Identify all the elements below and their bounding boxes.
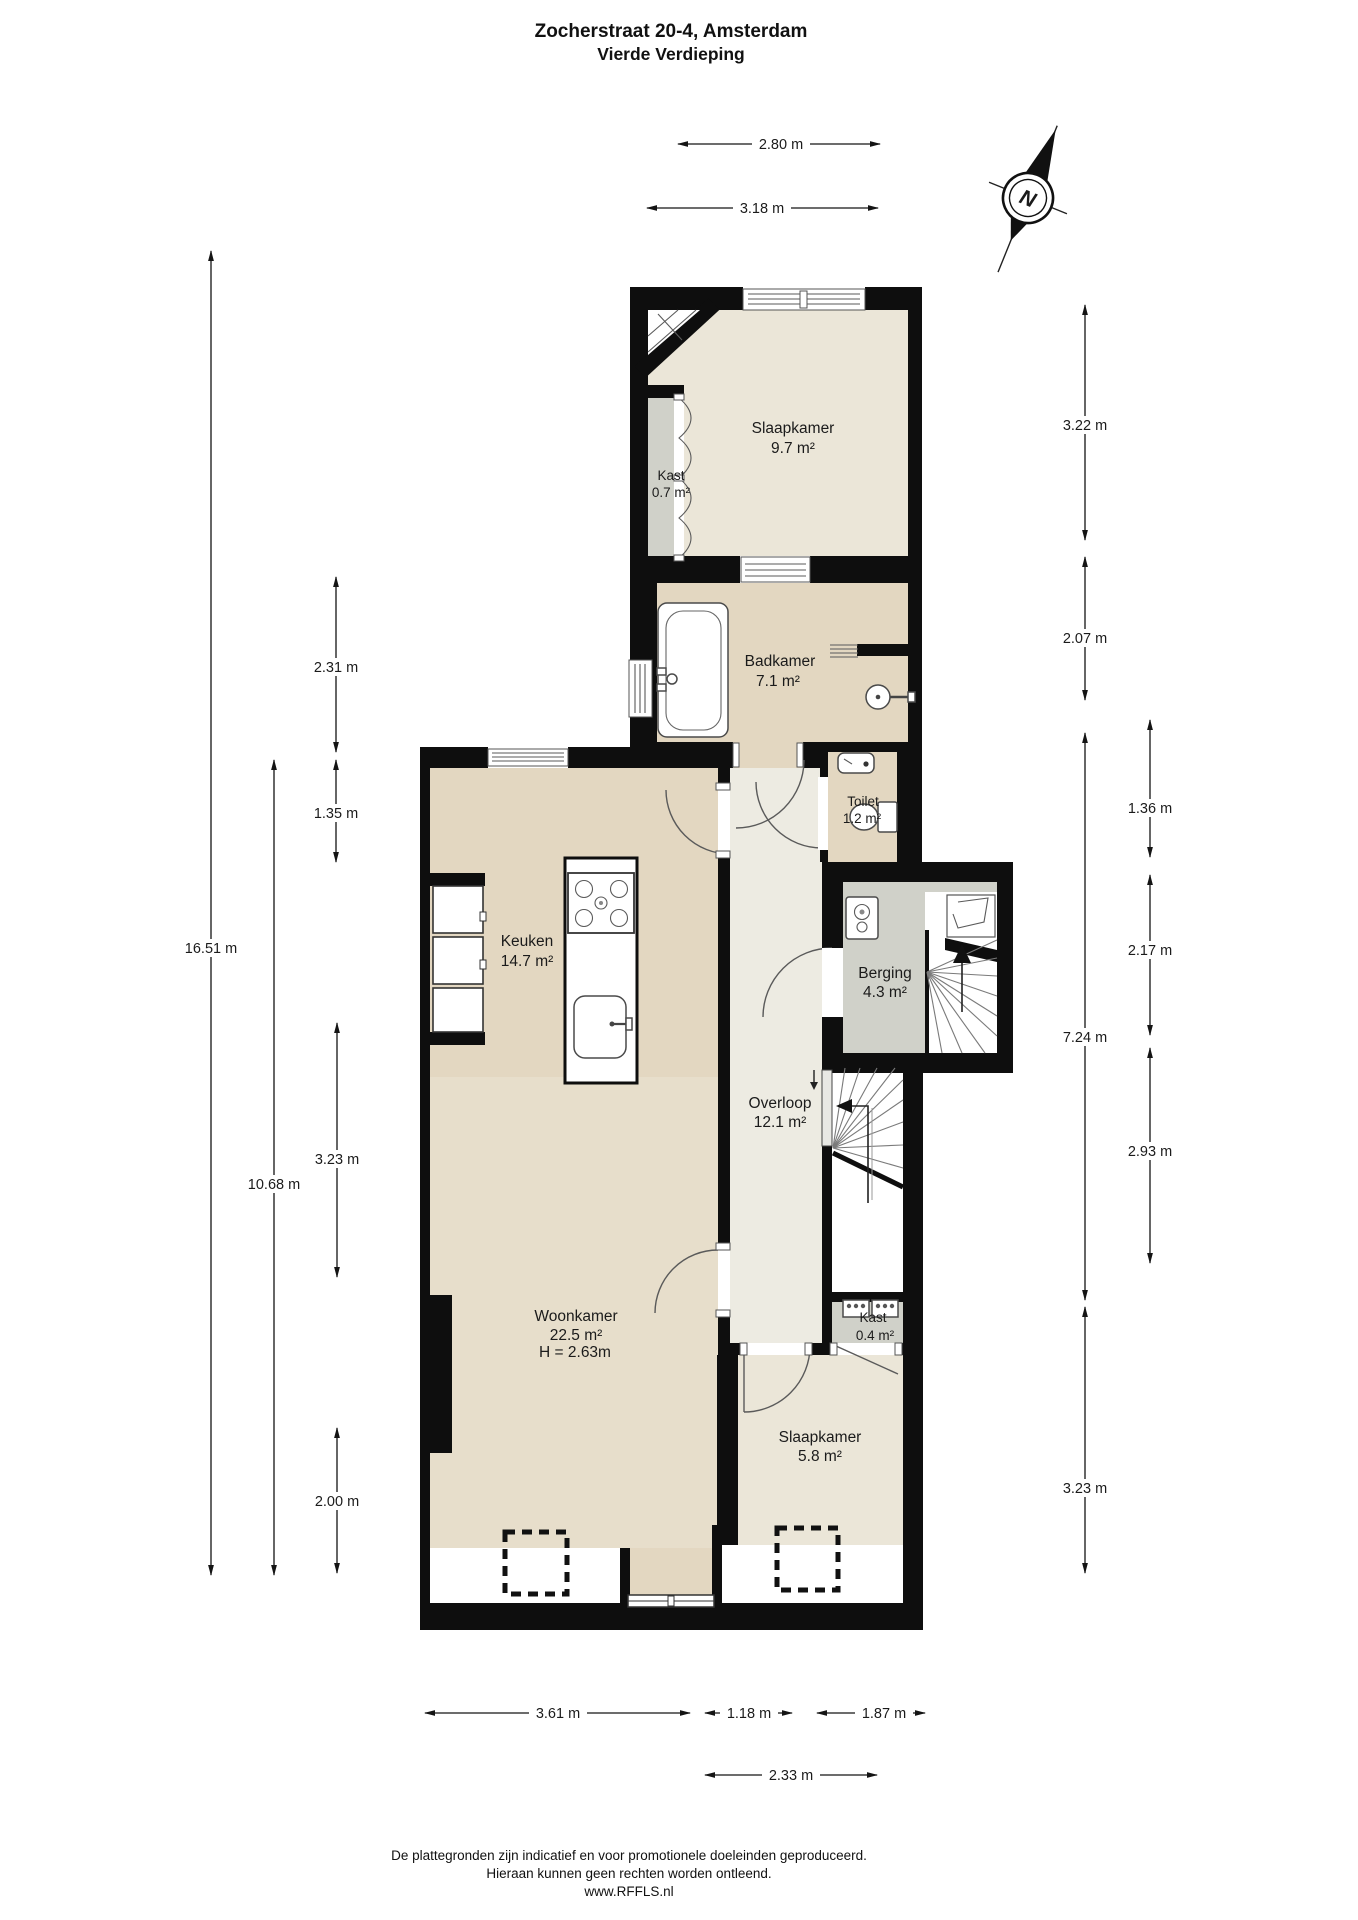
dim-left-1068: 10.68 m [241, 760, 307, 1575]
footer-website: www.RFFLS.nl [0, 1883, 1258, 1901]
window-badkamer-left [629, 660, 652, 717]
svg-text:2.31 m: 2.31 m [314, 660, 358, 676]
label-kast2-area: 0.4 m² [856, 1328, 895, 1343]
roof-strip-right [722, 1545, 903, 1603]
label-toilet-area: 1.2 m² [843, 811, 882, 826]
wall-segment [820, 850, 828, 862]
label-berging-area: 4.3 m² [863, 984, 907, 1001]
footer-line-1: De plattegronden zijn indicatief en voor… [0, 1847, 1258, 1865]
bathtub-icon [657, 603, 728, 737]
boiler-icon [846, 897, 878, 939]
svg-text:3.23 m: 3.23 m [315, 1152, 359, 1168]
dim-top-280: 2.80 m [678, 135, 880, 153]
door-jamb [797, 743, 803, 767]
svg-text:2.07 m: 2.07 m [1063, 631, 1107, 647]
wall-segment [822, 862, 843, 948]
label-slaapkamer1-name: Slaapkamer [752, 420, 835, 437]
dim-left-200: 2.00 m [310, 1428, 365, 1573]
label-badkamer-area: 7.1 m² [756, 673, 800, 690]
svg-text:3.18 m: 3.18 m [740, 201, 784, 217]
room-overloop [730, 742, 822, 1343]
door-jamb [895, 1343, 902, 1355]
bay-column [630, 1548, 712, 1598]
label-woonkamer-name: Woonkamer [534, 1308, 617, 1325]
dim-left-323: 3.23 m [310, 1023, 365, 1277]
label-slaapkamer1-area: 9.7 m² [771, 440, 815, 457]
svg-text:1.35 m: 1.35 m [314, 806, 358, 822]
svg-text:7.24 m: 7.24 m [1063, 1030, 1107, 1046]
label-badkamer-name: Badkamer [745, 653, 816, 670]
dim-left-1651: 16.51 m [178, 251, 244, 1575]
footer-line-2: Hieraan kunnen geen rechten worden ontle… [0, 1865, 1258, 1883]
doorway-hal [730, 742, 803, 768]
svg-text:1.18 m: 1.18 m [727, 1706, 771, 1722]
dim-right-322: 3.22 m [1058, 305, 1113, 540]
door-jamb [830, 1343, 837, 1355]
label-woonkamer-height: H = 2.63m [539, 1344, 611, 1361]
window-top [743, 289, 865, 310]
dim-right-217: 2.17 m [1123, 875, 1178, 1035]
wall-segment [430, 1032, 485, 1045]
door-jamb [805, 1343, 812, 1355]
label-toilet-name: Toilet [847, 794, 879, 809]
door-berging-gap [822, 948, 843, 1017]
wall-segment [820, 752, 828, 777]
label-berging-name: Berging [858, 965, 911, 982]
window-interior-slaapkamer [741, 557, 810, 582]
wall-segment [430, 873, 485, 886]
door-jamb [716, 1243, 730, 1250]
dim-bottom-233: 2.33 m [705, 1766, 877, 1784]
wall-segment [908, 287, 922, 742]
chimney-pier [428, 1295, 452, 1453]
label-woonkamer-area: 22.5 m² [550, 1327, 603, 1344]
dim-right-207: 2.07 m [1058, 557, 1113, 700]
floorplan-drawing: Slaapkamer 9.7 m² Kast 0.7 m² Badkamer 7… [0, 0, 1358, 1920]
wall-segment [828, 742, 897, 752]
label-keuken-area: 14.7 m² [501, 953, 554, 970]
svg-text:2.17 m: 2.17 m [1128, 943, 1172, 959]
wall-segment [630, 742, 733, 768]
door-toilet-gap [818, 777, 828, 850]
svg-text:3.61 m: 3.61 m [536, 1706, 580, 1722]
window-keuken-top [488, 749, 568, 766]
wall-segment [712, 1525, 722, 1605]
label-overloop-name: Overloop [749, 1095, 812, 1112]
wall-segment [822, 1053, 1013, 1073]
dim-right-136: 1.36 m [1123, 720, 1178, 857]
wall-segment [997, 870, 1013, 1073]
wall-segment [648, 556, 740, 583]
svg-text:3.22 m: 3.22 m [1063, 418, 1107, 434]
label-slaapkamer2-name: Slaapkamer [779, 1429, 862, 1446]
wall-segment [630, 287, 648, 568]
roof-strip-left [430, 1548, 620, 1603]
dim-right-293: 2.93 m [1123, 1048, 1178, 1263]
wall-segment [718, 853, 730, 1248]
svg-text:2.93 m: 2.93 m [1128, 1144, 1172, 1160]
wall-segment [420, 747, 488, 768]
svg-text:2.00 m: 2.00 m [315, 1494, 359, 1510]
dim-left-135: 1.35 m [309, 760, 364, 862]
label-overloop-area: 12.1 m² [754, 1114, 807, 1131]
kitchen-island [565, 858, 637, 1083]
svg-text:1.87 m: 1.87 m [862, 1706, 906, 1722]
wall-segment [857, 644, 910, 656]
wall-segment [822, 1017, 843, 1053]
svg-text:16.51 m: 16.51 m [185, 941, 237, 957]
door-jamb [716, 783, 730, 790]
svg-text:2.80 m: 2.80 m [759, 137, 803, 153]
wall-segment [717, 1355, 738, 1545]
door-jamb [733, 743, 739, 767]
door-jamb [716, 851, 730, 858]
compass-icon: N [959, 110, 1096, 288]
wall-segment [810, 556, 908, 583]
dim-top-318: 3.18 m [647, 199, 878, 217]
label-slaapkamer2-area: 5.8 m² [798, 1448, 842, 1465]
svg-text:1.36 m: 1.36 m [1128, 801, 1172, 817]
wall-segment [900, 1343, 923, 1355]
svg-text:10.68 m: 10.68 m [248, 1177, 300, 1193]
label-keuken-name: Keuken [501, 933, 554, 950]
svg-text:2.33 m: 2.33 m [769, 1768, 813, 1784]
kitchen-cabinets [433, 886, 486, 1032]
wall-segment [822, 862, 1013, 882]
wall-segment [718, 1343, 742, 1355]
door-jamb [716, 1310, 730, 1317]
dim-bottom-118: 1.18 m [705, 1704, 792, 1722]
hob-icon [568, 873, 634, 933]
floorplan-page: Zocherstraat 20-4, Amsterdam Vierde Verd… [0, 0, 1358, 1920]
balcony-railing [628, 1595, 714, 1607]
door-jamb [740, 1343, 747, 1355]
label-kast1-name: Kast [657, 468, 684, 483]
dim-left-231: 2.31 m [309, 577, 364, 752]
label-kast2-name: Kast [859, 1310, 886, 1325]
wall-segment [420, 747, 430, 1630]
dim-right-323: 3.23 m [1058, 1307, 1113, 1573]
toilet-sink-icon [838, 753, 874, 773]
wall-segment [897, 742, 922, 872]
dim-bottom-187: 1.87 m [817, 1704, 925, 1722]
dim-right-724: 7.24 m [1058, 733, 1113, 1300]
dim-bottom-361: 3.61 m [425, 1704, 690, 1722]
footer-disclaimer: De plattegronden zijn indicatief en voor… [0, 1847, 1258, 1901]
island-sink-icon [574, 996, 632, 1058]
svg-text:3.23 m: 3.23 m [1063, 1481, 1107, 1497]
stair-balustrade [822, 1070, 832, 1146]
wall-segment [568, 747, 630, 768]
label-kast1-area: 0.7 m² [652, 485, 691, 500]
